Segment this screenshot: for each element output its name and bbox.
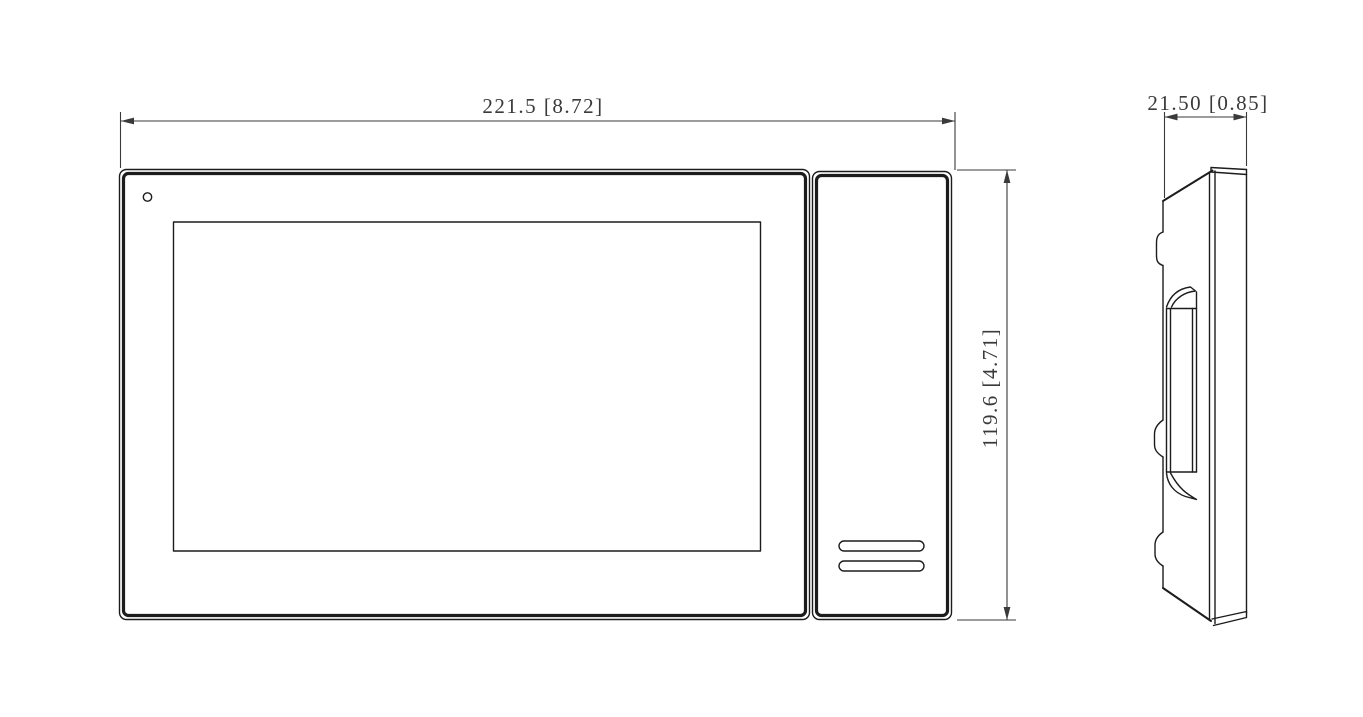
handset-panel-edge <box>817 176 948 616</box>
monitor-body-outline <box>120 170 810 620</box>
side-top-face <box>1211 168 1247 175</box>
dim-width: 221.5 [8.72] <box>121 94 956 170</box>
side-bottom-chamfer <box>1163 588 1211 621</box>
technical-drawing: 221.5 [8.72] 119.6 [4.71] 21.50 [0.85] <box>0 0 1363 717</box>
dim-height-arrow-top <box>1004 170 1011 183</box>
side-faceplate-edges <box>1210 171 1216 624</box>
recess-bottom-hook <box>1167 473 1197 500</box>
mounting-clip-top <box>1157 232 1164 266</box>
drawing-svg: 221.5 [8.72] 119.6 [4.71] 21.50 [0.85] <box>0 0 1363 717</box>
dim-height-label: 119.6 [4.71] <box>978 328 1002 448</box>
monitor-body-edge <box>124 174 806 616</box>
dim-height-arrow-bottom <box>1004 607 1011 620</box>
dim-width-label: 221.5 [8.72] <box>482 94 603 118</box>
recess-right-walls <box>1193 292 1197 472</box>
speaker-slot-bottom <box>839 561 924 571</box>
side-bottom-face <box>1212 612 1247 626</box>
speaker-slot-top <box>839 541 924 551</box>
mounting-clip-middle <box>1155 420 1164 457</box>
dim-width-arrow-left <box>121 118 134 125</box>
dim-width-arrow-right <box>942 118 955 125</box>
dim-height: 119.6 [4.71] <box>957 170 1016 620</box>
front-view <box>120 170 952 620</box>
side-view <box>1155 168 1247 626</box>
indicator-hole <box>143 193 151 201</box>
dim-depth-label: 21.50 [0.85] <box>1147 91 1268 115</box>
recess-top-hook <box>1167 287 1196 307</box>
dim-depth: 21.50 [0.85] <box>1147 91 1268 198</box>
recess-left-walls <box>1167 309 1171 472</box>
side-top-chamfer <box>1163 171 1213 202</box>
handset-panel-outline <box>813 172 952 620</box>
display-screen <box>174 222 761 551</box>
mounting-clip-bottom <box>1155 532 1163 566</box>
dim-depth-extension-lines <box>1165 112 1247 198</box>
